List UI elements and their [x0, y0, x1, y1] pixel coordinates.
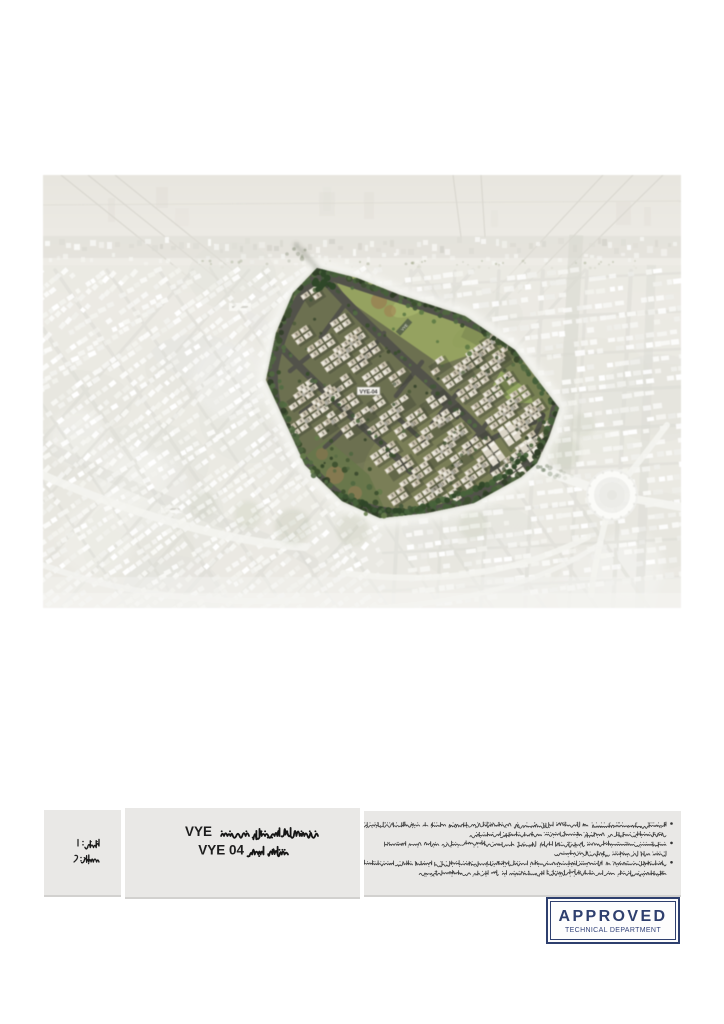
svg-text:VYE 04: VYE 04 — [198, 843, 244, 858]
svg-text:VYE: VYE — [185, 824, 212, 839]
svg-text:VYE-04: VYE-04 — [360, 389, 378, 395]
